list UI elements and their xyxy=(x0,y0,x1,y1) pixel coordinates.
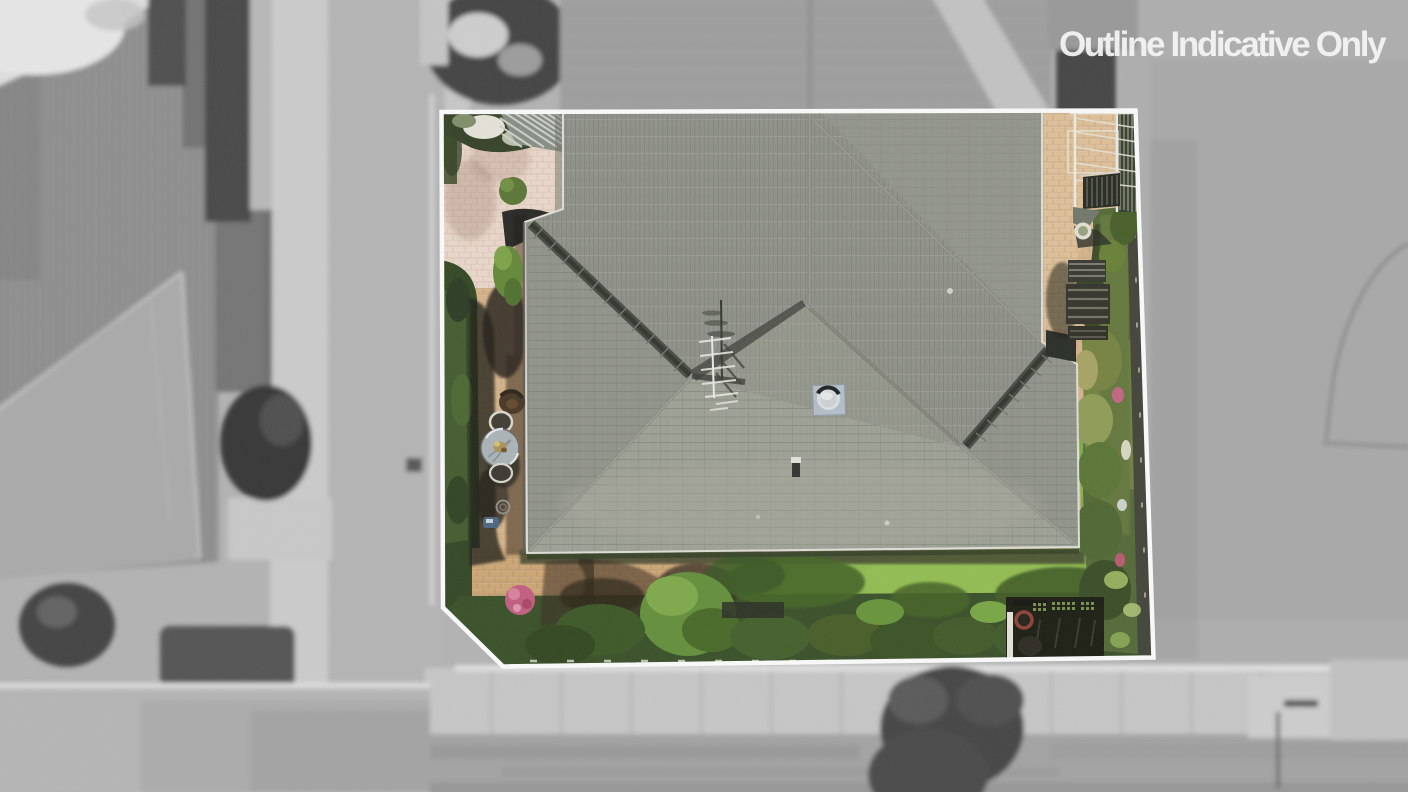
svg-text:Outline Indicative Only: Outline Indicative Only xyxy=(1059,25,1387,64)
